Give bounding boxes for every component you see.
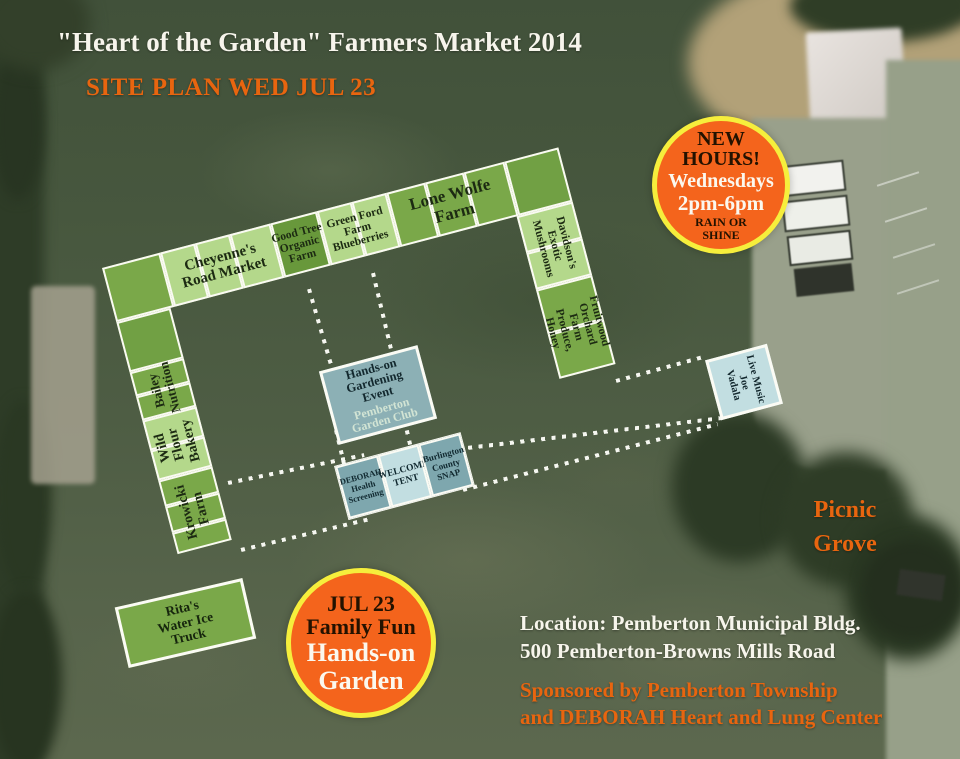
poster-title: "Heart of the Garden" Farmers Market 201… <box>57 27 582 58</box>
family-fun-line1: JUL 23 <box>327 592 395 615</box>
booth-ritas-label: Rita's Water Ice Truck <box>153 595 218 651</box>
location-line2: 500 Pemberton-Browns Mills Road <box>520 639 835 664</box>
new-hours-line6: SHINE <box>702 229 739 241</box>
picnic-grove-label: Picnic Grove <box>793 494 897 561</box>
concrete-pad-left <box>31 286 95 484</box>
family-fun-badge: JUL 23 Family Fun Hands-on Garden <box>286 568 436 718</box>
family-fun-line4: Garden <box>318 668 403 694</box>
new-hours-badge: NEW HOURS! Wednesdays 2pm-6pm RAIN OR SH… <box>652 116 790 254</box>
poster-subtitle: SITE PLAN WED JUL 23 <box>86 74 376 102</box>
booth-live-music-label: Live Music Joe Vadala <box>721 353 767 410</box>
new-hours-line4: 2pm-6pm <box>678 192 764 214</box>
new-hours-line2: HOURS! <box>682 149 760 170</box>
family-fun-line2: Family Fun <box>306 615 415 638</box>
sponsored-line1: Sponsored by Pemberton Township <box>520 678 838 703</box>
site-plan-poster: Cheyenne's Road Market Good Tree Organic… <box>0 0 960 759</box>
sponsored-line2: and DEBORAH Heart and Lung Center <box>520 705 882 730</box>
family-fun-line3: Hands-on <box>307 638 415 668</box>
new-hours-line1: NEW <box>697 129 745 149</box>
booth-snap-label: Burlington County SNAP <box>422 445 471 486</box>
new-hours-line3: Wednesdays <box>668 170 774 192</box>
location-line1: Location: Pemberton Municipal Bldg. <box>520 611 861 636</box>
new-hours-line5: RAIN OR <box>695 216 747 230</box>
